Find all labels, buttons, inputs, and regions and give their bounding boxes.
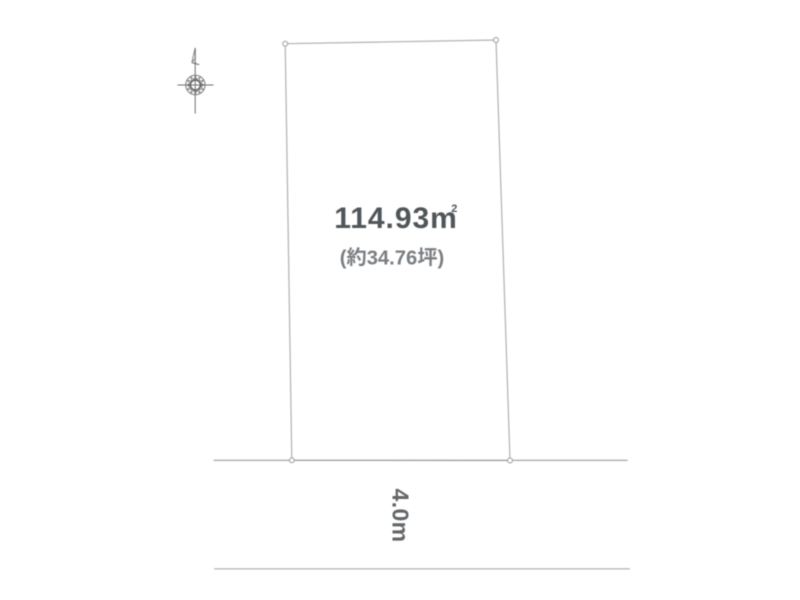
svg-text:2: 2 [451, 203, 457, 215]
svg-text:(: ( [340, 247, 347, 269]
svg-text:4.0m: 4.0m [387, 489, 413, 543]
svg-text:): ) [438, 247, 445, 269]
svg-text:34.76: 34.76 [367, 247, 418, 269]
svg-text:114.93m: 114.93m [334, 202, 457, 235]
